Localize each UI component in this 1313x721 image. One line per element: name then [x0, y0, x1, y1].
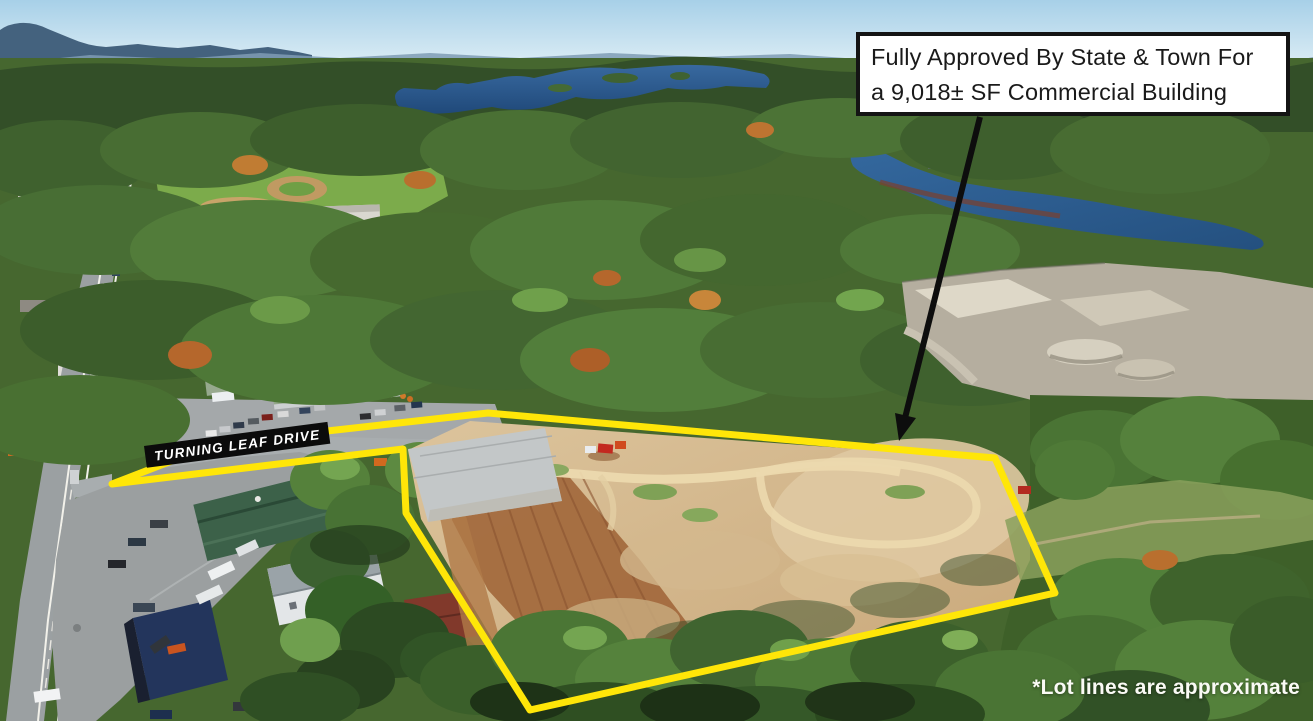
approval-annotation-box: Fully Approved By State & Town For a 9,0…: [856, 32, 1290, 116]
aerial-listing-photo: Fully Approved By State & Town For a 9,0…: [0, 0, 1313, 721]
lot-lines-disclaimer: *Lot lines are approximate: [1032, 676, 1300, 700]
gravel-quarry: [902, 263, 1313, 404]
annotation-line-2: a 9,018± SF Commercial Building: [871, 75, 1286, 110]
annotation-line-1: Fully Approved By State & Town For: [871, 40, 1286, 75]
